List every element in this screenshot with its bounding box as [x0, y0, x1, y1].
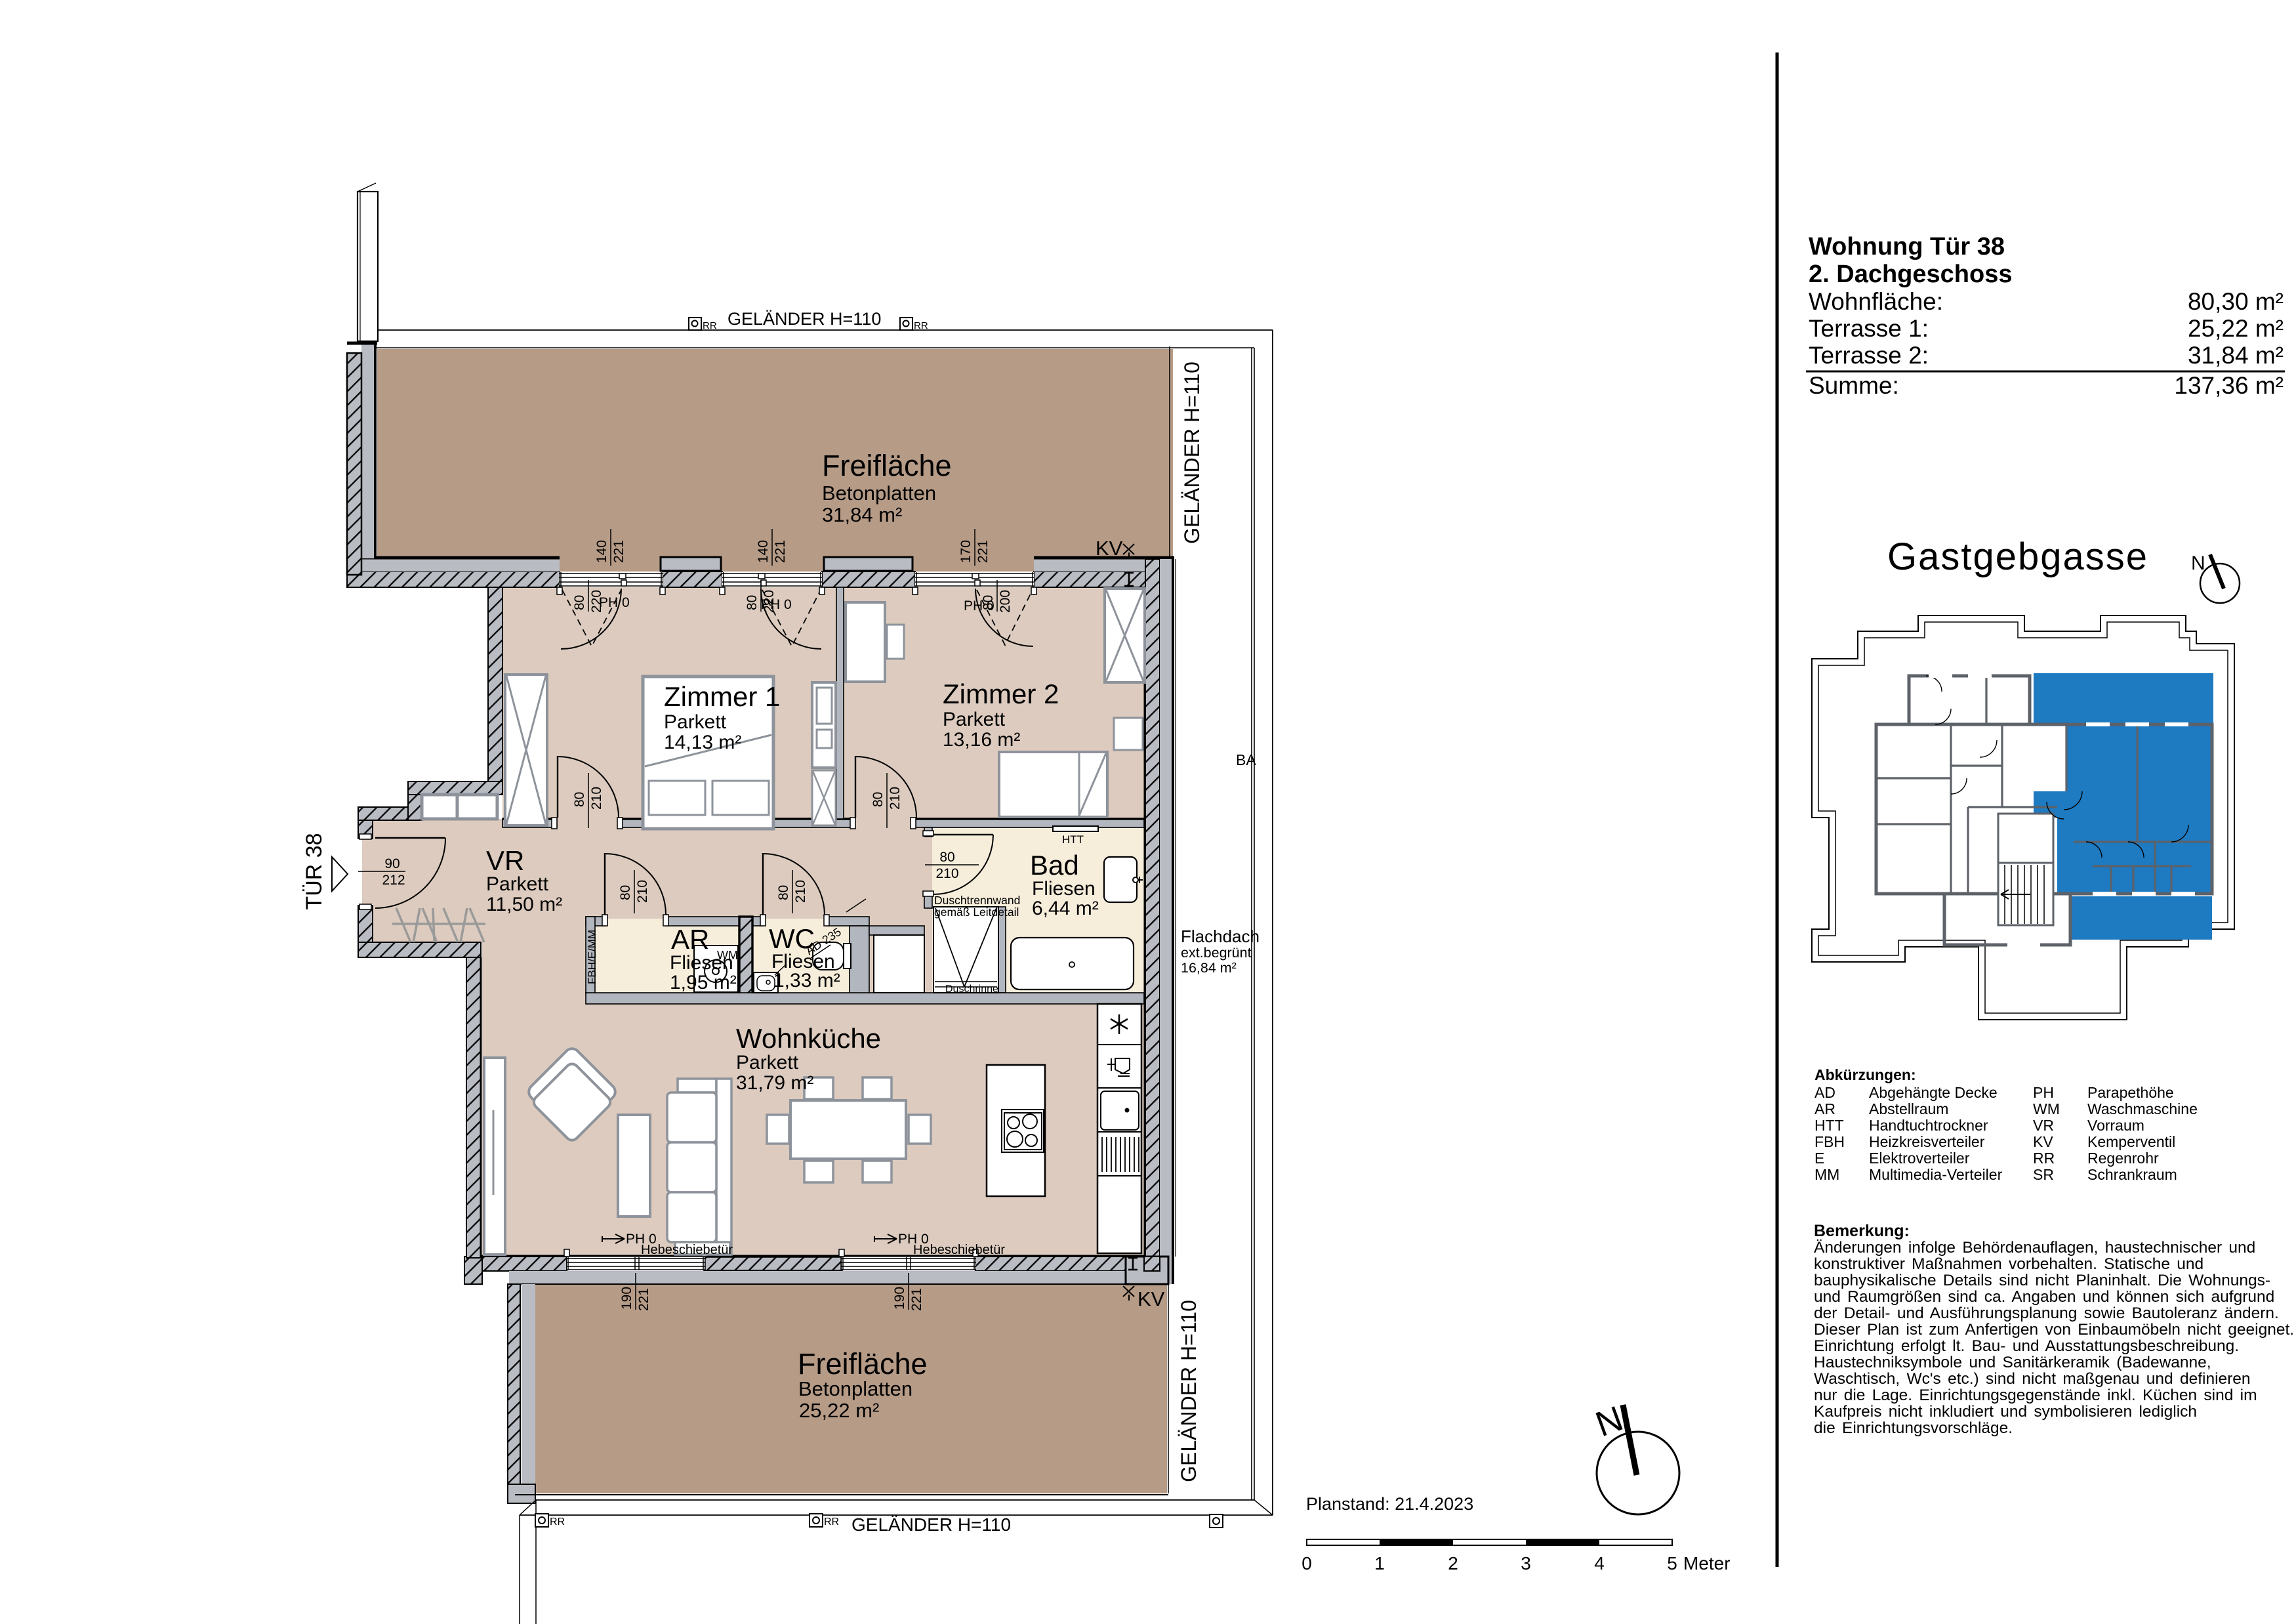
svg-text:BA: BA [1236, 751, 1256, 768]
svg-text:Zimmer 1: Zimmer 1 [664, 681, 780, 712]
svg-text:3: 3 [1521, 1553, 1531, 1573]
svg-text:Duschrinne: Duschrinne [945, 984, 998, 995]
svg-text:Parapethöhe: Parapethöhe [2087, 1084, 2174, 1101]
svg-text:210: 210 [589, 787, 604, 810]
svg-text:25,22 m²: 25,22 m² [2188, 315, 2284, 342]
svg-text:PH 0: PH 0 [761, 597, 792, 612]
svg-text:210: 210 [635, 880, 650, 903]
svg-text:11,50 m²: 11,50 m² [486, 894, 562, 915]
svg-text:210: 210 [793, 880, 808, 903]
svg-text:31,84 m²: 31,84 m² [2188, 342, 2284, 369]
svg-text:Waschmaschine: Waschmaschine [2087, 1100, 2198, 1117]
svg-text:GELÄNDER H=110: GELÄNDER H=110 [1180, 362, 1204, 544]
svg-text:190: 190 [892, 1287, 907, 1310]
svg-text:Gastgebgasse: Gastgebgasse [1887, 535, 2148, 578]
svg-text:16,84 m²: 16,84 m² [1181, 960, 1237, 976]
svg-text:Einrichtung erfolgt lt. Bau- u: Einrichtung erfolgt lt. Bau- und Ausstat… [1814, 1337, 2239, 1355]
svg-text:KV: KV [2033, 1133, 2053, 1150]
svg-text:80: 80 [939, 850, 954, 865]
svg-text:PH 0: PH 0 [599, 595, 630, 610]
svg-text:Regenrohr: Regenrohr [2087, 1150, 2159, 1167]
svg-text:Planstand: 21.4.2023: Planstand: 21.4.2023 [1306, 1494, 1473, 1514]
svg-text:KV: KV [1096, 537, 1123, 560]
svg-text:MM: MM [1814, 1166, 1839, 1183]
svg-text:RR: RR [550, 1516, 565, 1528]
svg-text:Kaufpreis nicht inkludiert und: Kaufpreis nicht inkludiert und symbolisi… [1814, 1403, 2197, 1421]
svg-text:Hebeschiebetür: Hebeschiebetür [913, 1243, 1005, 1257]
svg-text:Wohnung Tür 38: Wohnung Tür 38 [1809, 233, 2005, 260]
svg-text:Vorraum: Vorraum [2087, 1117, 2144, 1134]
svg-text:Parkett: Parkett [736, 1052, 799, 1073]
svg-text:VR: VR [2033, 1117, 2054, 1134]
svg-text:90: 90 [384, 856, 400, 871]
svg-text:0: 0 [1302, 1553, 1312, 1573]
svg-text:FBH: FBH [1814, 1133, 1845, 1150]
svg-text:6,44 m²: 6,44 m² [1032, 898, 1099, 919]
svg-text:Summe:: Summe: [1809, 372, 1899, 399]
svg-text:212: 212 [382, 873, 405, 888]
svg-text:Duschtrennwand: Duschtrennwand [934, 894, 1020, 907]
svg-text:Betonplatten: Betonplatten [822, 482, 936, 505]
svg-text:Fliesen: Fliesen [1032, 878, 1096, 900]
svg-text:WM: WM [2033, 1100, 2060, 1117]
svg-text:221: 221 [636, 1288, 651, 1311]
svg-text:2: 2 [1448, 1553, 1458, 1573]
svg-text:221: 221 [975, 540, 991, 563]
svg-text:VR: VR [486, 845, 524, 876]
svg-text:GELÄNDER H=110: GELÄNDER H=110 [728, 309, 881, 329]
svg-text:RR: RR [824, 1516, 839, 1528]
svg-text:2. Dachgeschoss: 2. Dachgeschoss [1809, 260, 2012, 288]
svg-text:5: 5 [1667, 1553, 1677, 1573]
svg-text:80: 80 [871, 792, 886, 807]
svg-text:Hebeschiebetür: Hebeschiebetür [641, 1243, 733, 1257]
svg-text:und Raumgrößen sind ca. Angabe: und Raumgrößen sind ca. Angaben und könn… [1814, 1288, 2274, 1306]
svg-text:AR: AR [671, 924, 709, 955]
svg-text:N: N [2191, 552, 2205, 574]
svg-text:210: 210 [935, 866, 958, 881]
svg-text:HTT: HTT [1814, 1117, 1844, 1134]
svg-text:Freifläche: Freifläche [798, 1347, 928, 1381]
svg-text:E: E [1814, 1150, 1824, 1167]
svg-text:1: 1 [1374, 1553, 1385, 1573]
svg-text:Betonplatten: Betonplatten [798, 1377, 912, 1400]
svg-text:Kemperventil: Kemperventil [2087, 1133, 2175, 1150]
svg-text:GELÄNDER H=110: GELÄNDER H=110 [851, 1514, 1011, 1535]
svg-text:Freifläche: Freifläche [822, 449, 952, 482]
svg-text:nur die Lage. Einrichtungsgege: nur die Lage. Einrichtungsgegenstände in… [1814, 1386, 2257, 1404]
svg-text:190: 190 [619, 1287, 634, 1310]
svg-text:Waschtisch, Wc's etc.) sind ni: Waschtisch, Wc's etc.) sind nicht maßgen… [1814, 1370, 2251, 1388]
svg-text:Terrasse 1:: Terrasse 1: [1809, 315, 1929, 342]
svg-text:RR: RR [914, 320, 928, 331]
svg-text:25,22 m²: 25,22 m² [799, 1399, 879, 1422]
svg-text:Meter: Meter [1683, 1553, 1731, 1573]
svg-text:200: 200 [998, 590, 1013, 613]
svg-text:Parkett: Parkett [486, 873, 549, 895]
svg-text:Parkett: Parkett [943, 709, 1006, 730]
svg-text:Wohnküche: Wohnküche [736, 1023, 881, 1054]
svg-text:die Einrichtungsvorschläge.: die Einrichtungsvorschläge. [1814, 1419, 2013, 1437]
svg-text:31,79 m²: 31,79 m² [736, 1072, 813, 1094]
svg-text:KV: KV [1138, 1287, 1165, 1310]
svg-text:31,84 m²: 31,84 m² [822, 503, 902, 526]
svg-text:der Detail- und Ausführungspla: der Detail- und Ausführungsplanung sowie… [1814, 1304, 2279, 1322]
svg-text:Bad: Bad [1030, 850, 1079, 881]
svg-text:80,30 m²: 80,30 m² [2188, 288, 2284, 315]
svg-text:Handtuchtrockner: Handtuchtrockner [1869, 1117, 1988, 1134]
svg-text:80: 80 [572, 595, 587, 610]
svg-text:Terrasse 2:: Terrasse 2: [1809, 342, 1929, 369]
svg-text:Zimmer 2: Zimmer 2 [943, 678, 1059, 709]
svg-text:4: 4 [1594, 1553, 1605, 1573]
svg-text:RR: RR [2033, 1150, 2055, 1167]
svg-text:Heizkreisverteiler: Heizkreisverteiler [1869, 1133, 1985, 1150]
svg-text:80: 80 [776, 885, 791, 900]
svg-text:Elektroverteiler: Elektroverteiler [1869, 1150, 1970, 1167]
svg-text:Bemerkung:: Bemerkung: [1814, 1222, 1910, 1240]
svg-text:14,13 m²: 14,13 m² [664, 732, 741, 753]
svg-text:1,95 m²: 1,95 m² [670, 972, 737, 993]
svg-text:80: 80 [618, 885, 633, 900]
svg-text:221: 221 [773, 540, 788, 563]
svg-text:221: 221 [909, 1288, 924, 1311]
svg-text:Änderungen infolge Behördenauf: Änderungen infolge Behördenauflagen, hau… [1814, 1239, 2255, 1257]
svg-text:Schrankraum: Schrankraum [2087, 1166, 2177, 1183]
svg-text:HTT: HTT [1062, 833, 1084, 846]
svg-text:1,33 m²: 1,33 m² [773, 970, 840, 991]
svg-text:GELÄNDER H=110: GELÄNDER H=110 [1177, 1300, 1200, 1482]
svg-text:140: 140 [594, 540, 609, 563]
svg-text:221: 221 [611, 540, 626, 563]
svg-text:Multimedia-Verteiler: Multimedia-Verteiler [1869, 1166, 2003, 1183]
svg-text:FBH/E/MM: FBH/E/MM [586, 930, 598, 984]
svg-text:170: 170 [958, 540, 974, 563]
svg-text:13,16 m²: 13,16 m² [943, 729, 1020, 751]
svg-text:WM: WM [717, 949, 738, 962]
svg-text:Abgehängte Decke: Abgehängte Decke [1869, 1084, 1998, 1101]
svg-text:AR: AR [1814, 1100, 1835, 1117]
svg-text:210: 210 [888, 787, 903, 810]
svg-text:Wohnfläche:: Wohnfläche: [1809, 288, 1943, 315]
svg-text:80: 80 [745, 595, 760, 610]
svg-text:SR: SR [2033, 1166, 2054, 1183]
svg-text:RR: RR [703, 320, 717, 331]
svg-text:gemäß Leitdetail: gemäß Leitdetail [934, 906, 1019, 919]
svg-text:bauphysikalische Details sind: bauphysikalische Details sind nicht Plan… [1814, 1272, 2270, 1289]
svg-text:Haustechniksymbole und Sanitär: Haustechniksymbole und Sanitärkeramik (B… [1814, 1354, 2211, 1371]
svg-text:140: 140 [756, 540, 771, 563]
svg-text:PH: PH [2033, 1084, 2054, 1101]
svg-text:PH 0: PH 0 [964, 598, 994, 614]
svg-text:Abkürzungen:: Abkürzungen: [1814, 1066, 1916, 1083]
svg-text:Dieser Plan ist zum Anfertigen: Dieser Plan ist zum Anfertigen von Einba… [1814, 1321, 2294, 1339]
svg-text:TÜR 38: TÜR 38 [302, 833, 327, 909]
svg-text:80: 80 [572, 792, 587, 807]
svg-text:ext.begrünt: ext.begrünt [1181, 945, 1252, 961]
svg-text:konstruktiver Maßnahmen vorbeh: konstruktiver Maßnahmen vorbehalten. Sta… [1814, 1255, 2204, 1273]
svg-text:Abstellraum: Abstellraum [1869, 1100, 1948, 1117]
svg-text:137,36 m²: 137,36 m² [2174, 372, 2284, 399]
svg-text:AD: AD [1814, 1084, 1835, 1101]
svg-text:Parkett: Parkett [664, 711, 727, 733]
svg-text:Flachdach: Flachdach [1181, 927, 1260, 946]
